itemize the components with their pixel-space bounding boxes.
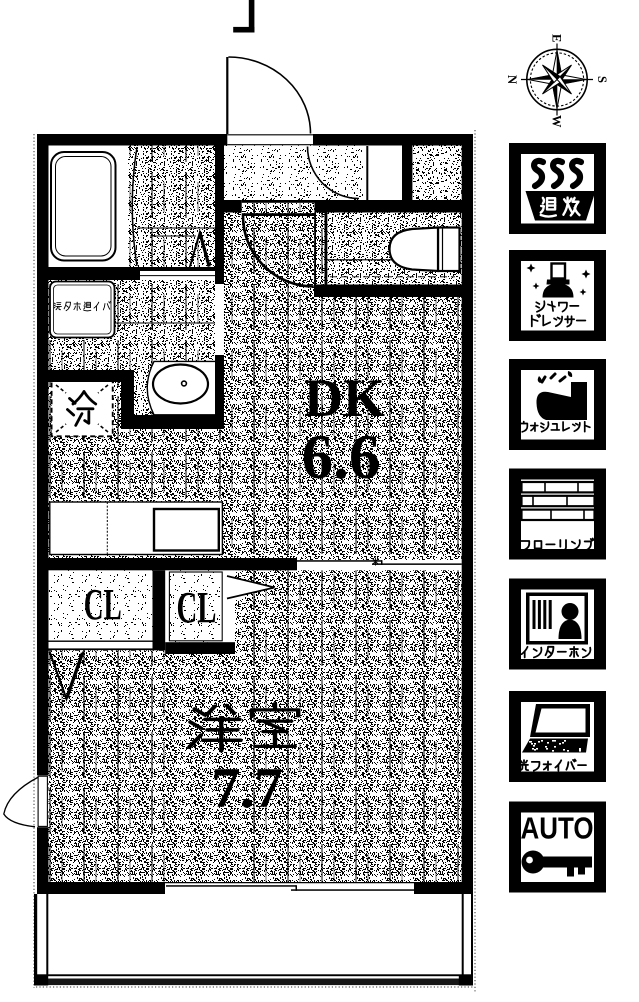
svg-text:E: E [550, 34, 564, 42]
svg-text:DK: DK [304, 368, 385, 428]
svg-text:CL: CL [177, 583, 217, 632]
svg-text:CL: CL [84, 580, 122, 629]
svg-text:N: N [505, 75, 519, 84]
svg-text:W: W [550, 115, 564, 128]
svg-text:6.6: 6.6 [302, 422, 381, 492]
svg-text:AUTO: AUTO [521, 811, 594, 846]
svg-text:S: S [595, 76, 609, 83]
svg-text:7.7: 7.7 [211, 757, 282, 820]
